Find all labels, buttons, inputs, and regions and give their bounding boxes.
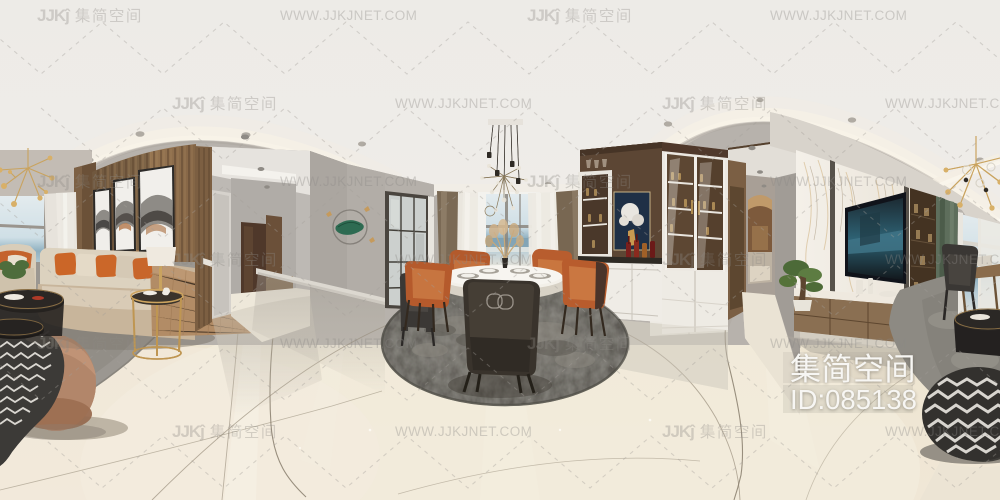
svg-text:WWW.JJKJNET.COM: WWW.JJKJNET.COM [885, 424, 1000, 439]
svg-text:WWW.JJKJNET.COM: WWW.JJKJNET.COM [395, 96, 532, 111]
svg-text:JJKĵ集简空间: JJKĵ集简空间 [172, 422, 278, 441]
svg-text:JJKĵ集简空间: JJKĵ集简空间 [527, 6, 633, 25]
svg-text:WWW.JJKJNET.COM: WWW.JJKJNET.COM [280, 336, 417, 351]
svg-text:JJKĵ集简空间: JJKĵ集简空间 [172, 94, 278, 113]
svg-text:WWW.JJKJNET.COM: WWW.JJKJNET.COM [885, 252, 1000, 267]
svg-text:JJKĵ集简空间: JJKĵ集简空间 [527, 172, 633, 191]
svg-text:JJKĵ集简空间: JJKĵ集简空间 [527, 334, 633, 353]
svg-text:JJKĵ集简空间: JJKĵ集简空间 [172, 250, 278, 269]
svg-text:WWW.JJKJNET.COM: WWW.JJKJNET.COM [395, 252, 532, 267]
svg-text:WWW.JJKJNET.COM: WWW.JJKJNET.COM [395, 424, 532, 439]
svg-text:JJKĵ集简空间: JJKĵ集简空间 [662, 250, 768, 269]
svg-text:JJKĵ集简空间: JJKĵ集简空间 [662, 422, 768, 441]
svg-text:WWW.JJKJNET.COM: WWW.JJKJNET.COM [885, 96, 1000, 111]
svg-text:JJKĵ集简空间: JJKĵ集简空间 [37, 6, 143, 25]
svg-text:集简空间: 集简空间 [790, 352, 916, 387]
svg-text:WWW.JJKJNET.COM: WWW.JJKJNET.COM [280, 174, 417, 189]
svg-text:WWW.JJKJNET.COM: WWW.JJKJNET.COM [280, 8, 417, 23]
svg-text:WWW.JJKJNET.COM: WWW.JJKJNET.COM [770, 8, 907, 23]
svg-text:JJKĵ集简空间: JJKĵ集简空间 [662, 94, 768, 113]
svg-text:JJKĵ集简空间: JJKĵ集简空间 [37, 334, 143, 353]
svg-text:WWW.JJKJNET.COM: WWW.JJKJNET.COM [770, 174, 907, 189]
svg-text:ID:085138: ID:085138 [790, 384, 917, 415]
svg-text:WWW.JJKJNET.COM: WWW.JJKJNET.COM [770, 336, 907, 351]
svg-text:JJKĵ集简空间: JJKĵ集简空间 [37, 172, 143, 191]
